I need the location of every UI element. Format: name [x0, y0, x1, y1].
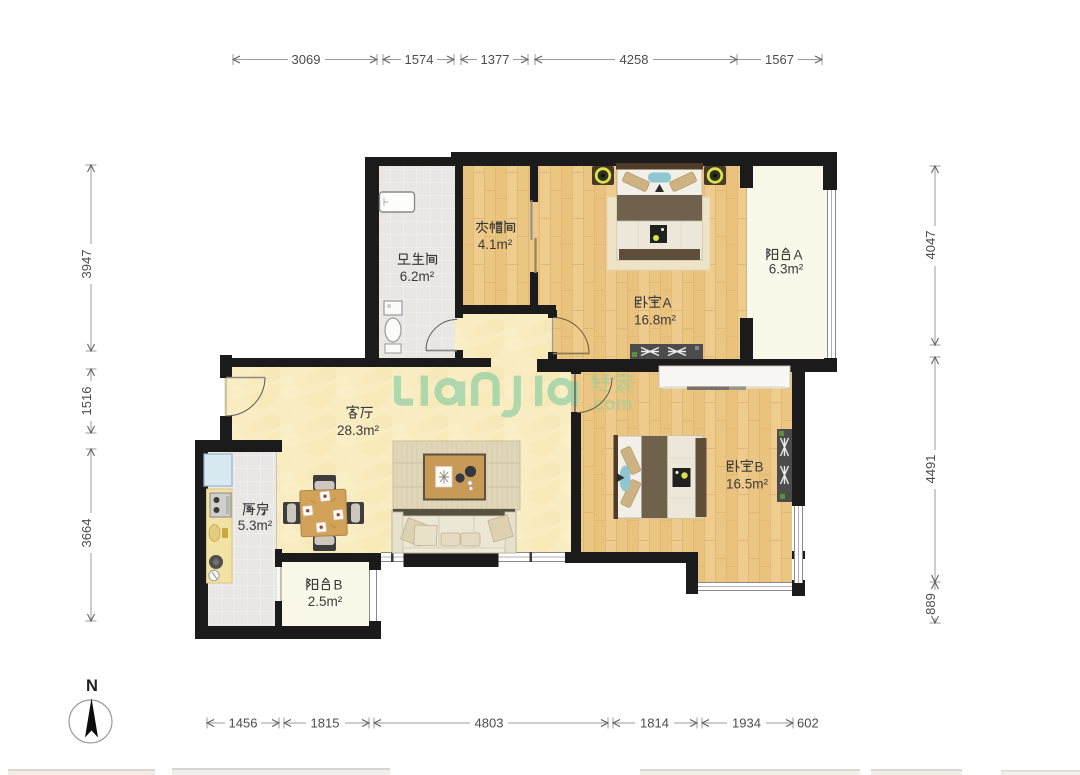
svg-text:B: B	[334, 578, 343, 593]
svg-text:4258: 4258	[620, 52, 649, 67]
svg-text:1456: 1456	[229, 716, 258, 731]
svg-text:28.3m²: 28.3m²	[337, 423, 380, 438]
svg-text:1934: 1934	[732, 716, 761, 731]
svg-text:4.1m²: 4.1m²	[478, 237, 513, 252]
svg-text:3664: 3664	[79, 519, 94, 548]
svg-text:N: N	[86, 677, 98, 695]
svg-text:16.8m²: 16.8m²	[634, 313, 677, 328]
svg-text:4491: 4491	[923, 455, 938, 484]
svg-text:5.3m²: 5.3m²	[238, 518, 273, 533]
svg-text:A: A	[663, 296, 672, 311]
svg-text:.com: .com	[588, 394, 632, 415]
svg-text:16.5m²: 16.5m²	[726, 477, 769, 492]
svg-text:4047: 4047	[923, 231, 938, 260]
svg-text:602: 602	[797, 716, 819, 731]
svg-text:1574: 1574	[405, 52, 434, 67]
svg-text:3947: 3947	[79, 250, 94, 279]
svg-text:889: 889	[923, 593, 938, 615]
svg-text:1814: 1814	[640, 716, 669, 731]
svg-text:A: A	[794, 248, 803, 263]
svg-text:6.3m²: 6.3m²	[769, 262, 804, 277]
svg-text:B: B	[755, 460, 764, 475]
svg-text:4803: 4803	[475, 716, 504, 731]
svg-text:1815: 1815	[311, 716, 340, 731]
svg-text:6.2m²: 6.2m²	[400, 269, 435, 284]
svg-text:1516: 1516	[79, 387, 94, 416]
svg-text:1377: 1377	[481, 52, 510, 67]
svg-text:3069: 3069	[292, 52, 321, 67]
svg-text:1567: 1567	[765, 52, 794, 67]
svg-text:2.5m²: 2.5m²	[308, 594, 343, 609]
